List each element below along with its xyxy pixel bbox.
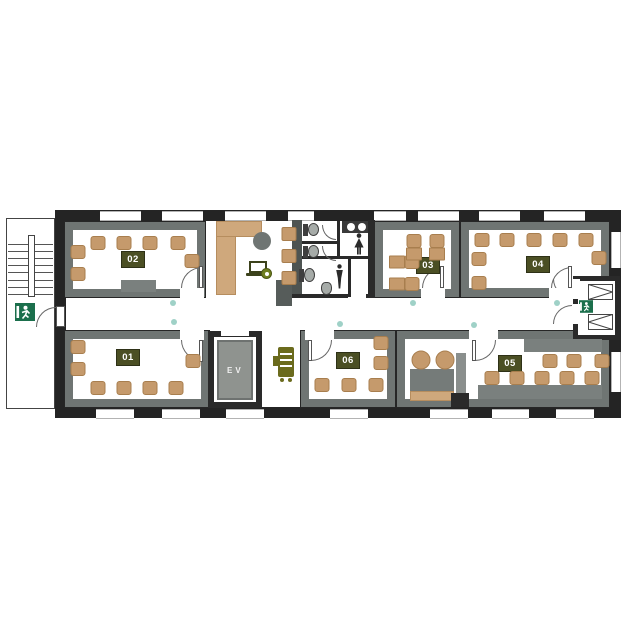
entrance-door-leaf xyxy=(56,306,65,327)
chair-icon xyxy=(407,234,422,248)
room-01-label: 01 xyxy=(116,349,140,366)
chair-icon xyxy=(553,233,568,247)
door-gap xyxy=(421,288,445,298)
stairwell-door-gap xyxy=(572,279,580,299)
chair-icon xyxy=(143,236,158,250)
exit-sign-icon xyxy=(579,300,593,313)
toilet-wall xyxy=(337,221,340,258)
chair-icon xyxy=(472,252,487,266)
chair-icon xyxy=(117,236,132,250)
window xyxy=(479,211,520,221)
stairs-icon xyxy=(588,314,613,330)
chair-icon xyxy=(143,381,158,395)
window xyxy=(544,211,585,221)
window xyxy=(225,211,266,221)
desk-icon xyxy=(389,256,405,269)
round-table xyxy=(253,232,271,250)
chair-icon xyxy=(71,245,86,259)
ceiling-sensor-dot xyxy=(171,319,177,325)
door-gap xyxy=(305,330,334,340)
copier-tray xyxy=(273,356,278,366)
stairs-icon xyxy=(588,284,613,300)
desk xyxy=(478,385,602,399)
copier-slot xyxy=(280,353,292,355)
window xyxy=(611,352,621,392)
sink-icon xyxy=(347,223,355,231)
chair-icon xyxy=(595,354,610,368)
toilet-icon xyxy=(308,245,319,258)
door-gap xyxy=(469,330,498,340)
chair-icon xyxy=(543,354,558,368)
chair-icon xyxy=(430,234,445,248)
chair-icon xyxy=(592,251,607,265)
window xyxy=(430,409,468,419)
lounge-chair-icon xyxy=(412,351,431,370)
window xyxy=(611,232,621,268)
sink-icon xyxy=(358,223,366,231)
window xyxy=(100,211,141,221)
copier-wheel xyxy=(288,378,292,382)
window xyxy=(162,409,200,419)
copier-slot xyxy=(280,365,292,367)
desk-icon xyxy=(429,248,445,261)
door-gap xyxy=(180,288,204,298)
urinal-icon xyxy=(321,282,332,295)
window xyxy=(492,409,529,419)
chair-icon xyxy=(510,371,525,385)
toilet-wall xyxy=(348,259,351,297)
toilet-icon xyxy=(304,268,315,282)
door-leaf xyxy=(308,340,312,361)
door-gap xyxy=(180,330,204,340)
floor-plan: EV 01 02 03 04 05 06 xyxy=(0,0,630,630)
chair-icon xyxy=(485,371,500,385)
window xyxy=(374,211,406,221)
chair-icon xyxy=(342,378,357,392)
room-02-label: 02 xyxy=(121,251,145,268)
woman-icon xyxy=(353,233,365,255)
chair-icon xyxy=(567,354,582,368)
window xyxy=(226,409,264,419)
desk xyxy=(524,339,602,352)
lounge-table xyxy=(410,369,454,391)
floor-plan-page: EV 01 02 03 04 05 06 xyxy=(0,0,630,630)
chair-icon xyxy=(91,236,106,250)
room-06-label: 06 xyxy=(336,352,360,369)
toilet-wall xyxy=(366,294,375,298)
chair-icon xyxy=(71,340,86,354)
chair-icon xyxy=(185,254,200,268)
chair-icon xyxy=(315,378,330,392)
chair-icon xyxy=(117,381,132,395)
stool-icon xyxy=(282,227,297,241)
elevator-door-gap xyxy=(221,329,249,336)
man-icon xyxy=(335,264,344,289)
chair-icon xyxy=(91,381,106,395)
ceiling-sensor-dot xyxy=(170,300,176,306)
desk-icon xyxy=(406,248,422,261)
chair-icon xyxy=(374,356,389,370)
door-leaf xyxy=(199,266,203,288)
room-04-label: 04 xyxy=(526,256,550,273)
copier-icon xyxy=(278,347,294,377)
chair-icon xyxy=(535,371,550,385)
chair-icon xyxy=(71,267,86,281)
door-leaf xyxy=(440,266,444,288)
ceiling-sensor-dot xyxy=(471,322,477,328)
chair-icon xyxy=(405,277,420,291)
wall-stub xyxy=(451,393,469,407)
ceiling-sensor-dot xyxy=(554,300,560,306)
credenza xyxy=(121,280,156,292)
window xyxy=(330,409,368,419)
window xyxy=(96,409,134,419)
chair-icon xyxy=(579,233,594,247)
partition xyxy=(456,353,466,395)
window xyxy=(162,211,203,221)
lounge-chair-icon xyxy=(436,351,455,370)
chair-icon xyxy=(369,378,384,392)
window xyxy=(418,211,459,221)
chair-icon xyxy=(560,371,575,385)
chair-icon xyxy=(186,354,201,368)
chair-icon xyxy=(500,233,515,247)
chair-icon xyxy=(71,362,86,376)
toilet-icon xyxy=(308,223,319,236)
door-gap xyxy=(549,288,572,298)
toilet-wall xyxy=(368,220,375,298)
chair-icon xyxy=(169,381,184,395)
copier-slot xyxy=(280,359,292,361)
chair-icon xyxy=(475,233,490,247)
chair-icon xyxy=(472,276,487,290)
toilet-wall xyxy=(292,294,348,298)
chair-icon xyxy=(374,336,389,350)
stool-icon xyxy=(282,271,297,285)
coffee-cup-center xyxy=(265,272,269,276)
elevator-label: EV xyxy=(227,366,244,375)
stairwell-door-gap xyxy=(572,304,580,324)
chair-icon xyxy=(527,233,542,247)
exit-sign-icon xyxy=(15,303,35,321)
room-05-label: 05 xyxy=(498,355,522,372)
stool-icon xyxy=(282,249,297,263)
ceiling-sensor-dot xyxy=(337,321,343,327)
chair-icon xyxy=(171,236,186,250)
chair-icon xyxy=(585,371,600,385)
toilet-wall xyxy=(302,241,339,244)
door-leaf xyxy=(568,266,572,288)
stair-rail xyxy=(28,235,35,297)
lounge-bench xyxy=(410,391,454,401)
window xyxy=(556,409,594,419)
desk-icon xyxy=(389,278,405,291)
door-leaf xyxy=(472,340,476,361)
ceiling-sensor-dot xyxy=(410,300,416,306)
copier-wheel xyxy=(280,378,284,382)
